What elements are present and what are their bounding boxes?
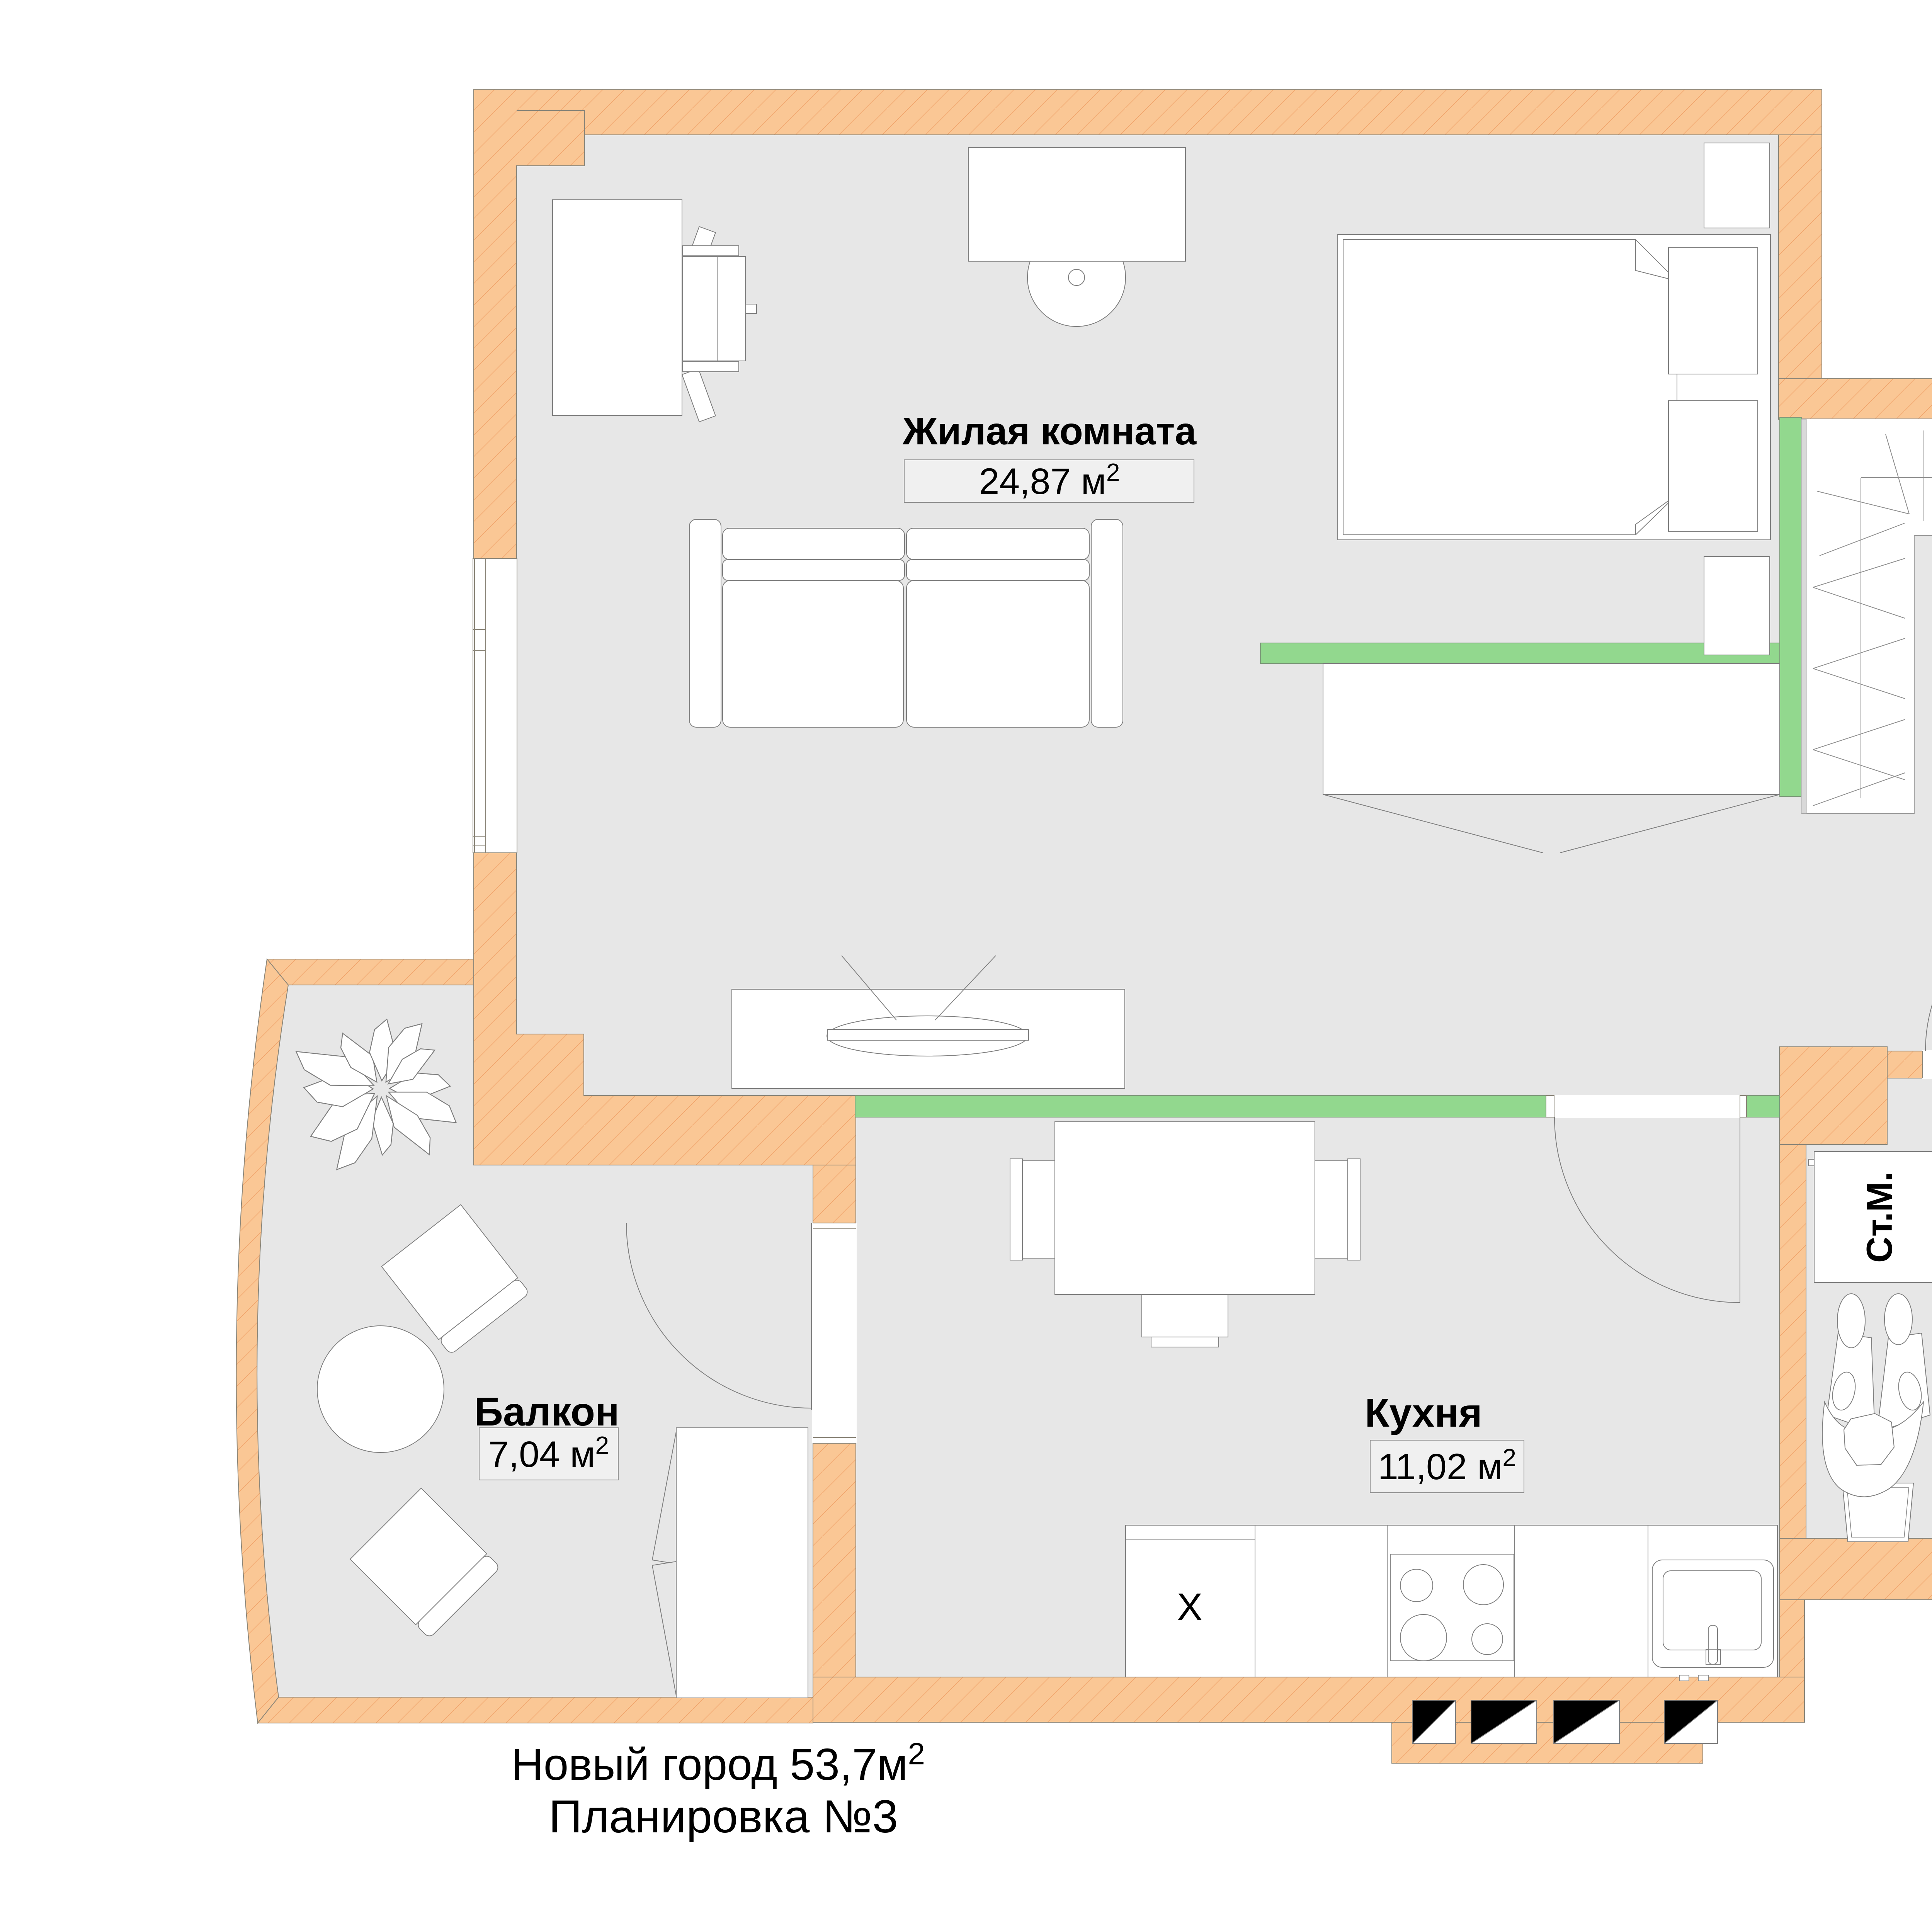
svg-text:X: X (1177, 1585, 1203, 1629)
svg-text:24,87 м2: 24,87 м2 (979, 458, 1120, 502)
svg-text:11,02 м2: 11,02 м2 (1378, 1444, 1516, 1487)
svg-text:Кухня: Кухня (1365, 1391, 1482, 1436)
svg-text:Ст.М.: Ст.М. (1859, 1172, 1900, 1263)
svg-text:Новый город 53,7м2: Новый город 53,7м2 (511, 1737, 925, 1789)
svg-text:7,04 м2: 7,04 м2 (488, 1431, 609, 1475)
svg-text:Жилая комната: Жилая комната (902, 410, 1197, 453)
svg-text:Планировка №3: Планировка №3 (549, 1791, 898, 1842)
